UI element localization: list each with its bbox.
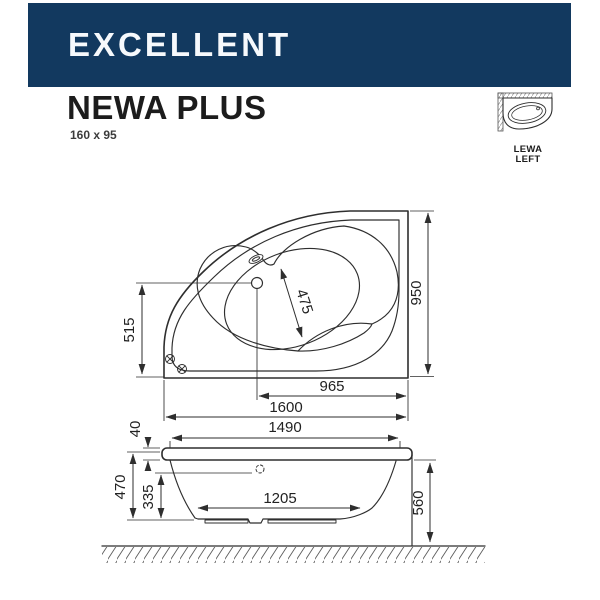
dim-bottom-length: 1205	[198, 490, 360, 508]
dim-installed-height: 560	[410, 460, 436, 542]
skid-pad	[268, 520, 336, 523]
technical-drawing: 475 515 950 965 1600	[0, 0, 600, 600]
drain-section-icon	[256, 465, 264, 473]
dim-label-470: 470	[112, 474, 129, 499]
dim-label-1205: 1205	[263, 490, 296, 507]
dim-top-inner-length: 1490	[170, 419, 400, 449]
dim-label-560: 560	[410, 490, 427, 515]
dim-label-335: 335	[140, 484, 157, 509]
dim-label-515: 515	[121, 317, 138, 342]
ground-hatch	[102, 547, 485, 563]
floor-ground	[102, 546, 485, 563]
dim-label-965: 965	[319, 378, 344, 395]
skid-pad	[205, 520, 248, 523]
dim-label-1490: 1490	[268, 419, 301, 436]
dim-total-width: 950	[408, 211, 434, 377]
rim-section	[162, 448, 412, 460]
section-view-drawing: 1490 40 470 335	[102, 419, 485, 563]
dim-inner-depth: 335	[140, 473, 252, 518]
dim-total-length: 1600	[164, 380, 406, 421]
top-view-drawing: 475 515 950 965 1600	[121, 211, 434, 421]
dim-label-950: 950	[408, 280, 425, 305]
drain-icon	[252, 278, 263, 289]
dim-rim-height: 40	[127, 421, 160, 468]
dim-label-1600: 1600	[269, 399, 302, 416]
dim-label-40: 40	[127, 421, 144, 438]
